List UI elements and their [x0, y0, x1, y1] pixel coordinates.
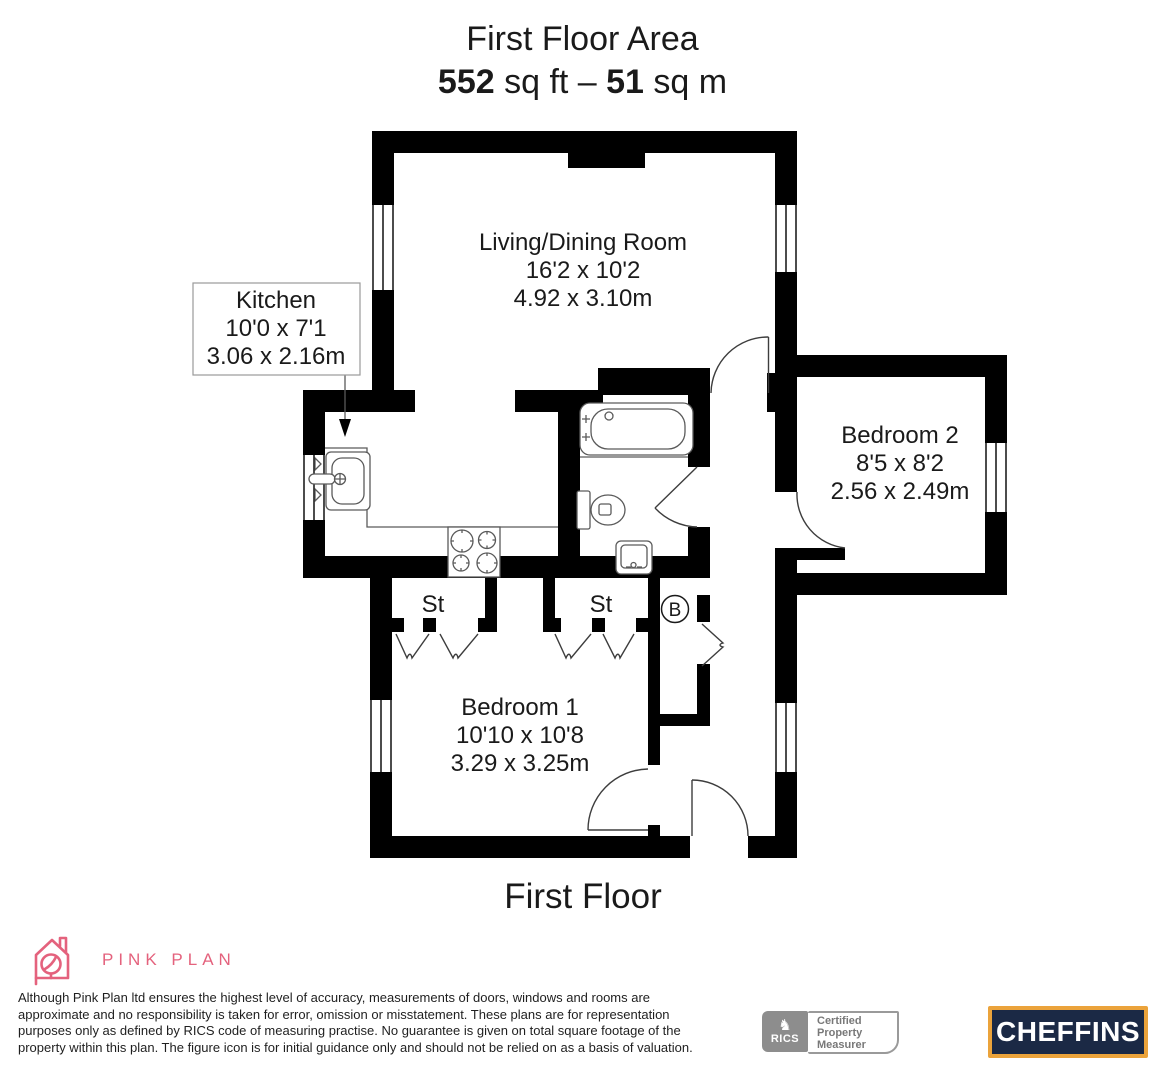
window — [985, 443, 1007, 512]
wall-segment — [372, 131, 394, 205]
wall-segment — [775, 548, 845, 560]
area-sqft-value: 552 — [438, 63, 495, 101]
door-bathroom — [655, 467, 697, 527]
door-jamb — [392, 618, 404, 632]
rics-badge: ♞ RICS Certified Property Measurer — [762, 1011, 899, 1054]
door-living-to-hall — [711, 337, 769, 393]
disclaimer-line: property within this plan. The figure ic… — [18, 1040, 693, 1057]
area-sqm-value: 51 — [606, 63, 644, 101]
brand-name: PINK PLAN — [102, 950, 236, 970]
bifold-door-boiler — [702, 624, 723, 666]
wall-segment — [775, 595, 797, 703]
agent-name: CHEFFINS — [996, 1016, 1140, 1048]
wall-segment — [775, 560, 797, 595]
disclaimer-line: approximate and no responsibility is tak… — [18, 1007, 693, 1024]
rics-lion-icon: ♞ — [778, 1018, 791, 1033]
room-size-metric: 4.92 x 3.10m — [514, 285, 653, 312]
wall-segment — [370, 836, 690, 858]
boiler-label: B — [669, 600, 682, 621]
door-bedroom1 — [588, 769, 648, 830]
door-jamb — [423, 618, 436, 632]
bifold-door-storage-right — [555, 634, 634, 658]
room-name: Living/Dining Room — [479, 229, 687, 256]
wall-segment — [558, 390, 580, 578]
wall-segment — [648, 714, 710, 726]
toilet — [577, 491, 625, 529]
bifold-door-storage-left — [396, 634, 478, 658]
rics-certification: Certified Property Measurer — [808, 1011, 899, 1054]
wall-segment — [775, 377, 797, 492]
window — [303, 455, 325, 520]
room-size-metric: 3.06 x 2.16m — [207, 343, 346, 370]
fixtures — [309, 403, 693, 577]
room-size-imperial: 16'2 x 10'2 — [526, 257, 641, 284]
wall-segment — [748, 836, 797, 858]
wall-segment — [648, 825, 660, 836]
floorplan-drawing: Kitchen 10'0 x 7'1 3.06 x 2.16m Living/D… — [0, 118, 1165, 920]
wall-segment — [775, 355, 1007, 377]
wall-segment — [985, 355, 1007, 443]
room-size-metric: 2.56 x 2.49m — [831, 478, 970, 505]
area-summary: 552 sq ft – 51 sq m — [0, 60, 1165, 104]
floorplan-page: First Floor Area 552 sq ft – 51 sq m — [0, 0, 1165, 1080]
wall-segment — [775, 573, 1007, 595]
floor-caption: First Floor — [504, 877, 662, 916]
door-jamb — [592, 618, 605, 632]
room-name: Kitchen — [236, 287, 316, 314]
storage-label: St — [590, 591, 613, 618]
storage-label: St — [422, 591, 445, 618]
area-sqm-unit: sq m — [644, 63, 727, 101]
wall-segment — [648, 578, 660, 765]
rics-mark: ♞ RICS — [762, 1011, 808, 1052]
area-sqft-unit: sq ft – — [495, 63, 607, 101]
rics-cert-line: Property — [817, 1027, 897, 1039]
front-door — [692, 780, 748, 836]
window — [775, 205, 797, 272]
pink-plan-logo: PINK PLAN — [28, 934, 236, 986]
rics-wordmark: RICS — [771, 1033, 799, 1045]
hob — [448, 527, 500, 577]
door-jamb — [549, 618, 561, 632]
chimney-breast — [568, 153, 645, 168]
disclaimer: Although Pink Plan ltd ensures the highe… — [18, 990, 693, 1056]
wall-segment — [372, 131, 797, 153]
door-jamb — [478, 618, 492, 632]
room-size-metric: 3.29 x 3.25m — [451, 750, 590, 777]
agent-logo: CHEFFINS — [988, 1006, 1148, 1058]
wall-segment — [370, 772, 392, 858]
window — [372, 205, 394, 290]
house-leaf-icon — [28, 934, 76, 986]
room-name: Bedroom 2 — [841, 422, 958, 449]
kitchen-callout: Kitchen 10'0 x 7'1 3.06 x 2.16m — [193, 283, 360, 437]
basin — [616, 541, 652, 574]
wall-segment — [303, 390, 325, 455]
page-title: First Floor Area — [0, 18, 1165, 60]
window — [775, 703, 797, 772]
room-size-imperial: 10'10 x 10'8 — [456, 722, 584, 749]
room-size-imperial: 8'5 x 8'2 — [856, 450, 944, 477]
wall-segment — [370, 578, 392, 700]
arrow-down-icon — [339, 419, 351, 437]
room-labels: Living/Dining Room 16'2 x 10'2 4.92 x 3.… — [422, 229, 970, 777]
rics-cert-line: Certified — [817, 1015, 897, 1027]
header: First Floor Area 552 sq ft – 51 sq m — [0, 18, 1165, 104]
door-jamb — [636, 618, 648, 632]
bathtub — [580, 403, 693, 457]
tub-drain — [605, 412, 613, 420]
window — [370, 700, 392, 772]
wall-segment — [688, 527, 710, 578]
room-size-imperial: 10'0 x 7'1 — [225, 315, 326, 342]
rics-cert-line: Measurer — [817, 1039, 897, 1051]
disclaimer-line: Although Pink Plan ltd ensures the highe… — [18, 990, 693, 1007]
faucet — [309, 474, 335, 484]
disclaimer-line: purposes only as defined by RICS code of… — [18, 1023, 693, 1040]
wall-segment — [775, 131, 797, 205]
wall-segment — [697, 595, 710, 622]
room-name: Bedroom 1 — [461, 694, 578, 721]
